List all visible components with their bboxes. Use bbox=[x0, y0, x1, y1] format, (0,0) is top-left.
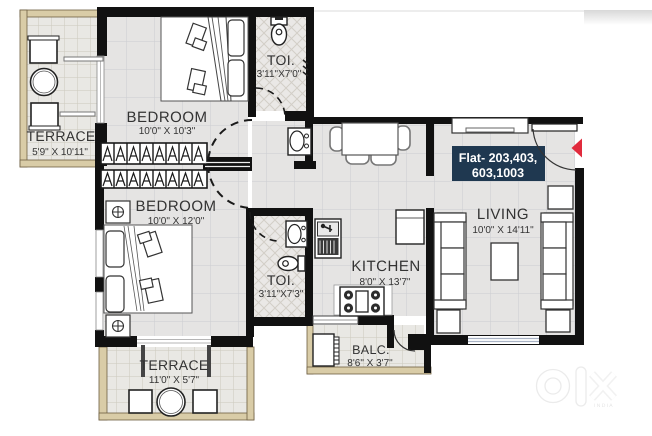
svg-text:11'0" X 5'7": 11'0" X 5'7" bbox=[149, 375, 200, 386]
svg-text:5'9" X 10'11": 5'9" X 10'11" bbox=[32, 147, 88, 158]
svg-text:TOI.: TOI. bbox=[267, 52, 295, 68]
svg-text:BALC.: BALC. bbox=[352, 343, 390, 357]
svg-text:TERRACE: TERRACE bbox=[27, 128, 96, 144]
svg-text:I N D I A: I N D I A bbox=[594, 403, 613, 409]
svg-text:8'0" X 13'7": 8'0" X 13'7" bbox=[360, 277, 411, 288]
svg-text:Flat- 203,403,: Flat- 203,403, bbox=[459, 151, 538, 165]
svg-text:10'0" X 10'3": 10'0" X 10'3" bbox=[139, 126, 196, 137]
svg-text:BEDROOM: BEDROOM bbox=[135, 198, 216, 215]
svg-text:KITCHEN: KITCHEN bbox=[351, 258, 420, 275]
svg-text:8'6" X 3'7": 8'6" X 3'7" bbox=[347, 358, 393, 369]
svg-text:LIVING: LIVING bbox=[477, 206, 529, 223]
svg-text:3'11"X7'3": 3'11"X7'3" bbox=[259, 289, 304, 300]
svg-text:3'11"X7'0": 3'11"X7'0" bbox=[257, 69, 302, 80]
svg-text:TOI.: TOI. bbox=[267, 272, 295, 288]
svg-text:BEDROOM: BEDROOM bbox=[126, 109, 207, 126]
svg-text:10'0" X 12'0": 10'0" X 12'0" bbox=[148, 216, 205, 227]
svg-text:TERRACE: TERRACE bbox=[140, 357, 209, 373]
svg-text:10'0" X 14'11": 10'0" X 14'11" bbox=[472, 225, 534, 236]
svg-text:603,1003: 603,1003 bbox=[472, 166, 524, 180]
